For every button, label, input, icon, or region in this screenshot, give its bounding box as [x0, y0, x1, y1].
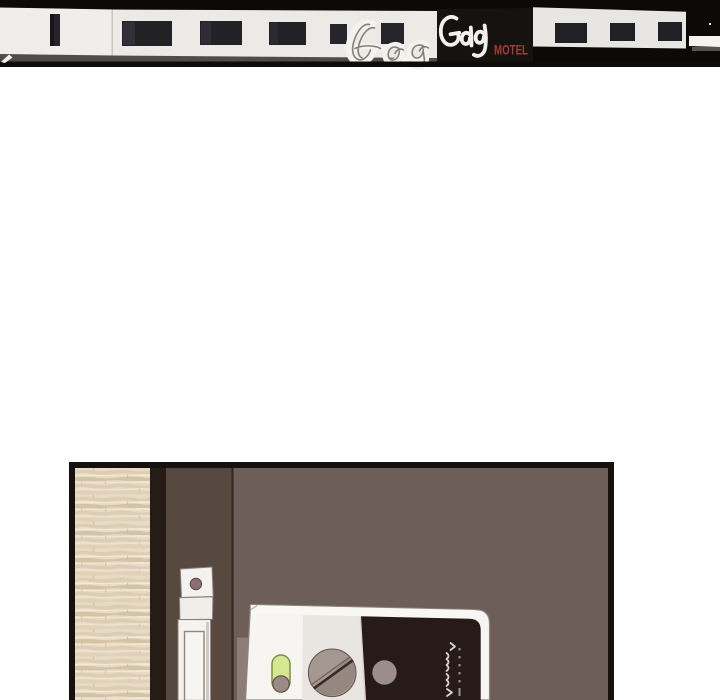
svg-text:MOTEL: MOTEL: [494, 43, 528, 58]
